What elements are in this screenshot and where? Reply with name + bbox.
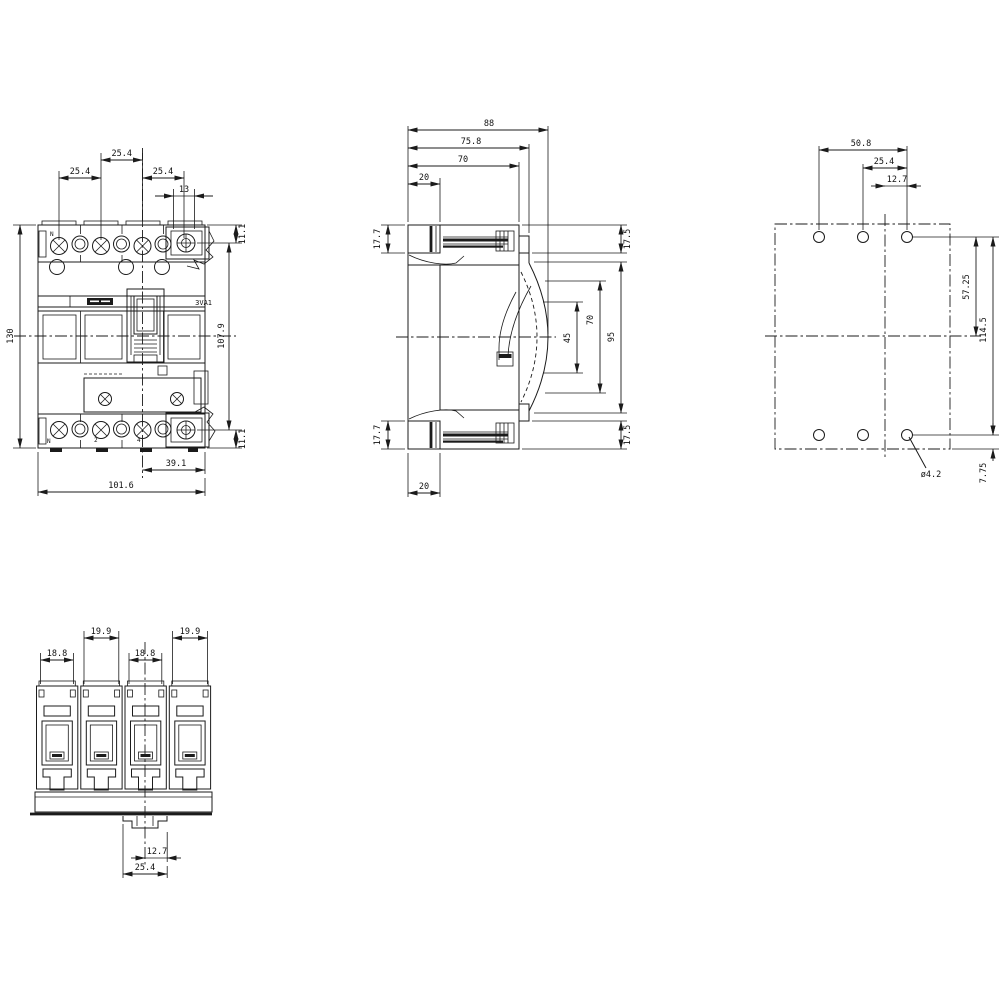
pole-label-top-n: N — [50, 231, 54, 238]
dim-side-depth-to-cover: 75.8 — [461, 137, 481, 147]
dimension-drawing-sheet: N 3VA1 — [0, 0, 1000, 1000]
dim-rear-hole-to-centerline: 57.25 — [962, 274, 972, 300]
dim-side-clearance-bottom: 17.5 — [623, 425, 633, 445]
dim-front-top-terminal-offset: 11.1 — [238, 224, 248, 244]
dim-side-busbar-height-top: 17.7 — [373, 229, 383, 249]
front-test-button — [158, 366, 167, 375]
hole-callout-leader — [909, 437, 926, 468]
front-mid-panels — [38, 311, 205, 363]
dim-front-neutral-to-edge: 39.1 — [166, 459, 186, 469]
dim-rear-hole-span-outer: 50.8 — [851, 139, 871, 149]
dim-rear-hole-span-mid: 25.4 — [874, 157, 894, 167]
bottom-view-linework — [30, 681, 212, 828]
dim-front-terminal-span: 107.9 — [217, 323, 227, 349]
dim-side-busbar-depth-bottom: 20 — [419, 482, 429, 492]
pole-label-bottom-4: 4 — [137, 437, 141, 444]
dim-front-overall-width: 101.6 — [108, 481, 134, 491]
dim-bottom-pole2-width: 19.9 — [91, 627, 111, 637]
rear-outline-phantom — [775, 224, 950, 449]
front-bottom-terminal-row — [38, 407, 215, 452]
dim-side-clearance-top: 17.5 — [623, 229, 633, 249]
dim-side-window-small: 45 — [563, 333, 573, 343]
bottom-dimensions — [41, 631, 208, 878]
dim-side-busbar-depth-top: 20 — [419, 173, 429, 183]
dim-bottom-tab-half-width: 12.7 — [147, 847, 167, 857]
drawing-canvas: N 3VA1 — [0, 0, 1000, 1000]
front-top-terminal-screws — [51, 236, 172, 255]
dim-bottom-pole1-width: 18.8 — [47, 649, 67, 659]
dim-rear-hole-to-edge: 7.75 — [979, 463, 989, 483]
side-view: 88 75.8 70 20 17.7 17.7 20 17.5 95 70 45… — [373, 119, 633, 497]
dim-front-bottom-terminal-offset: 11.1 — [238, 429, 248, 449]
front-toggle-handle — [127, 289, 164, 362]
front-top-box-terminal — [166, 227, 214, 269]
front-view: N 3VA1 — [6, 148, 248, 496]
dim-bottom-pole4-width: 19.9 — [180, 627, 200, 637]
dim-side-depth-overall: 88 — [484, 119, 494, 129]
front-accessory-cover — [84, 371, 208, 412]
rear-dimensions — [819, 146, 999, 468]
dim-bottom-tab-width: 25.4 — [135, 863, 155, 873]
dim-front-pitch-center: 25.4 — [112, 149, 132, 159]
series-label: 3VA1 — [195, 299, 212, 307]
dim-front-pitch-right: 25.4 — [153, 167, 173, 177]
front-label-strip — [38, 296, 205, 307]
bottom-view: 18.8 19.9 18.8 19.9 12.7 25.4 — [30, 627, 212, 878]
dim-side-depth-to-case: 70 — [458, 155, 468, 165]
rear-drilling-view: 50.8 25.4 12.7 57.25 114.5 7.75 ø4.2 — [765, 139, 999, 483]
dim-rear-hole-span-vertical: 114.5 — [979, 317, 989, 343]
dim-rear-hole-offset-center: 12.7 — [887, 175, 907, 185]
dim-front-overall-height: 130 — [6, 328, 16, 343]
dim-front-pitch-left: 25.4 — [70, 167, 90, 177]
pole-label-bottom-2: 2 — [94, 437, 98, 444]
dim-side-window-mid: 70 — [586, 315, 596, 325]
dim-rear-hole-diameter: ø4.2 — [921, 470, 941, 480]
dim-side-window-large: 95 — [607, 332, 617, 342]
dim-bottom-pole3-width: 18.8 — [135, 649, 155, 659]
dim-front-box-terminal-width: 13 — [179, 185, 189, 195]
pole-label-bottom-n: N — [47, 438, 51, 445]
dim-side-busbar-height-bottom: 17.7 — [373, 425, 383, 445]
